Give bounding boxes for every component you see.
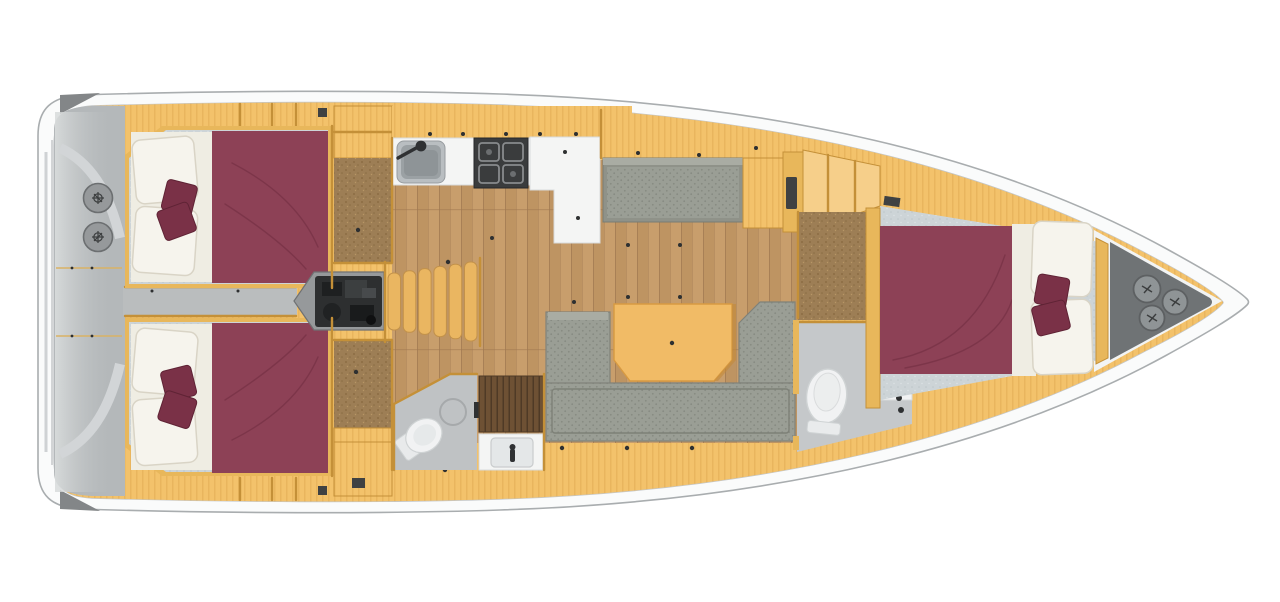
step: [465, 262, 478, 341]
cabin-entry-floor: [334, 158, 392, 264]
catch-dot: [538, 132, 542, 136]
step: [403, 271, 416, 332]
sofa-arm-left: [546, 312, 610, 384]
catch-dot: [461, 132, 465, 136]
locker-knob: [898, 407, 904, 413]
port-lockers: [334, 106, 392, 264]
bow-hatch: [1134, 276, 1161, 303]
cabinet: [743, 158, 783, 228]
cockpit-fitting-dot: [91, 267, 94, 270]
helm-wheel-starboard: [84, 223, 113, 252]
aft-cabin-starboard: [125, 318, 332, 476]
cabin-entry-floor: [334, 340, 392, 428]
chart-table-catch: [563, 150, 567, 154]
forward-corridor: [798, 212, 866, 320]
bow-bulkhead: [1096, 238, 1108, 364]
catch-dot: [504, 132, 508, 136]
sofa-arm-left-top: [548, 312, 608, 320]
faucet-icon: [510, 449, 515, 462]
catch-dot: [697, 153, 701, 157]
sofa-arm-right: [739, 302, 795, 383]
vent-icon: [318, 486, 327, 495]
stove: [474, 138, 528, 188]
head-door-jamb: [793, 320, 799, 394]
corridor-floor: [798, 212, 866, 320]
floor-ring: [446, 260, 450, 264]
floor-ring: [678, 243, 682, 247]
aft-cabin-port: [125, 126, 332, 288]
galley-upper-band: [392, 106, 632, 138]
floor-ring: [354, 370, 358, 374]
floor-ring: [626, 243, 630, 247]
floor-ring: [572, 300, 576, 304]
walkway-dot: [151, 290, 154, 293]
saloon-bench-port: [603, 158, 743, 222]
bow-hatch: [1140, 306, 1165, 331]
table-fitting: [670, 341, 674, 345]
faucet-icon: [416, 141, 427, 152]
vent-icon: [786, 177, 797, 209]
cockpit-fitting-dot: [71, 267, 74, 270]
vent-icon: [318, 108, 327, 117]
cockpit-fitting-dot: [91, 335, 94, 338]
chart-table-catch: [576, 216, 580, 220]
bow-hatch: [1163, 290, 1188, 315]
galley-sink: [397, 141, 445, 183]
floor-ring: [490, 236, 494, 240]
vent-icon: [352, 478, 365, 488]
saloon-sofa: [546, 302, 795, 441]
starboard-lockers: [334, 340, 392, 496]
center-walkway: [123, 287, 297, 316]
bed-spread: [212, 323, 328, 473]
catch-dot: [428, 132, 432, 136]
bench-top-edge: [603, 158, 743, 165]
foot-bulkhead: [866, 208, 880, 408]
engine-compartment: [294, 272, 384, 330]
floor-ring: [678, 295, 682, 299]
floor-plan-stage: [0, 0, 1280, 602]
catch-dot: [754, 146, 758, 150]
head-door-jamb: [793, 436, 799, 450]
catch-dot: [636, 151, 640, 155]
catch-dot: [625, 446, 629, 450]
walkway-dot: [237, 290, 240, 293]
step: [449, 264, 462, 339]
catch-dot: [560, 446, 564, 450]
cockpit-fitting-dot: [71, 335, 74, 338]
step: [388, 273, 401, 330]
bed-spread: [880, 226, 1012, 374]
catch-dot: [574, 132, 578, 136]
catch-dot: [690, 446, 694, 450]
bench-cushion: [607, 167, 739, 218]
shower-grating: [479, 376, 543, 432]
head-vanity: [479, 434, 543, 470]
yacht-floor-plan: [0, 0, 1280, 602]
floor-ring: [356, 228, 360, 232]
step: [434, 266, 447, 336]
floor-ring: [626, 295, 630, 299]
engine-icon: [315, 276, 382, 327]
locker-shelf: [334, 428, 392, 442]
step: [419, 269, 432, 335]
faucet-icon: [510, 444, 516, 450]
helm-wheel-port: [84, 184, 113, 213]
